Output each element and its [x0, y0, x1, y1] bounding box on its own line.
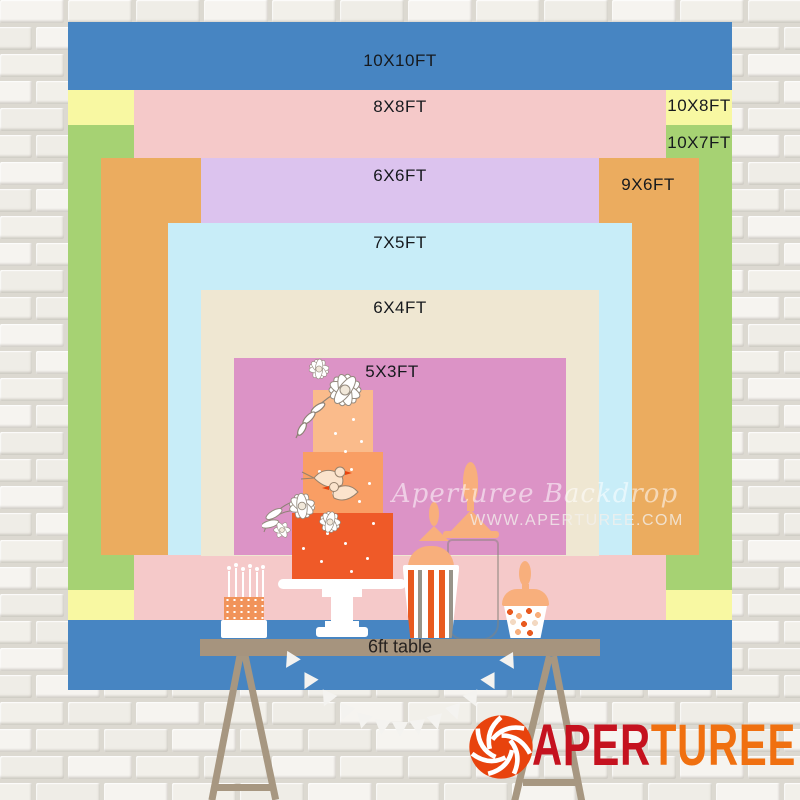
bunting-flag: [353, 712, 372, 730]
bunting-flag: [409, 719, 427, 736]
table-leg: [241, 652, 279, 800]
bunting-flag: [480, 672, 501, 693]
table-leg-crossbar: [523, 779, 581, 786]
aperture-icon: [468, 714, 534, 780]
table-leg-crossbar: [215, 784, 271, 791]
backdrop-size-chart-image: 10X10FT10X8FT10X7FT8X8FT9X6FT6X6FT7X5FT6…: [0, 0, 800, 800]
bunting-flag: [445, 703, 465, 722]
table-and-bunting: 6ft table: [0, 0, 800, 800]
table-size-label: 6ft table: [368, 637, 432, 658]
brand-name: APERTUREE: [532, 717, 796, 775]
bunting-flag: [373, 719, 391, 736]
bunting-flag: [463, 689, 484, 709]
bunting-flag: [335, 703, 355, 723]
bunting-flag: [317, 689, 338, 709]
brand-name-part2: TUREE: [651, 713, 796, 778]
bunting-flag: [297, 672, 318, 693]
brand-name-part1: APER: [532, 713, 651, 778]
table-leg: [208, 652, 243, 800]
bunting-flag: [426, 713, 445, 731]
aperturee-logo: APERTUREE: [468, 712, 800, 780]
bunting-flag: [392, 722, 408, 737]
